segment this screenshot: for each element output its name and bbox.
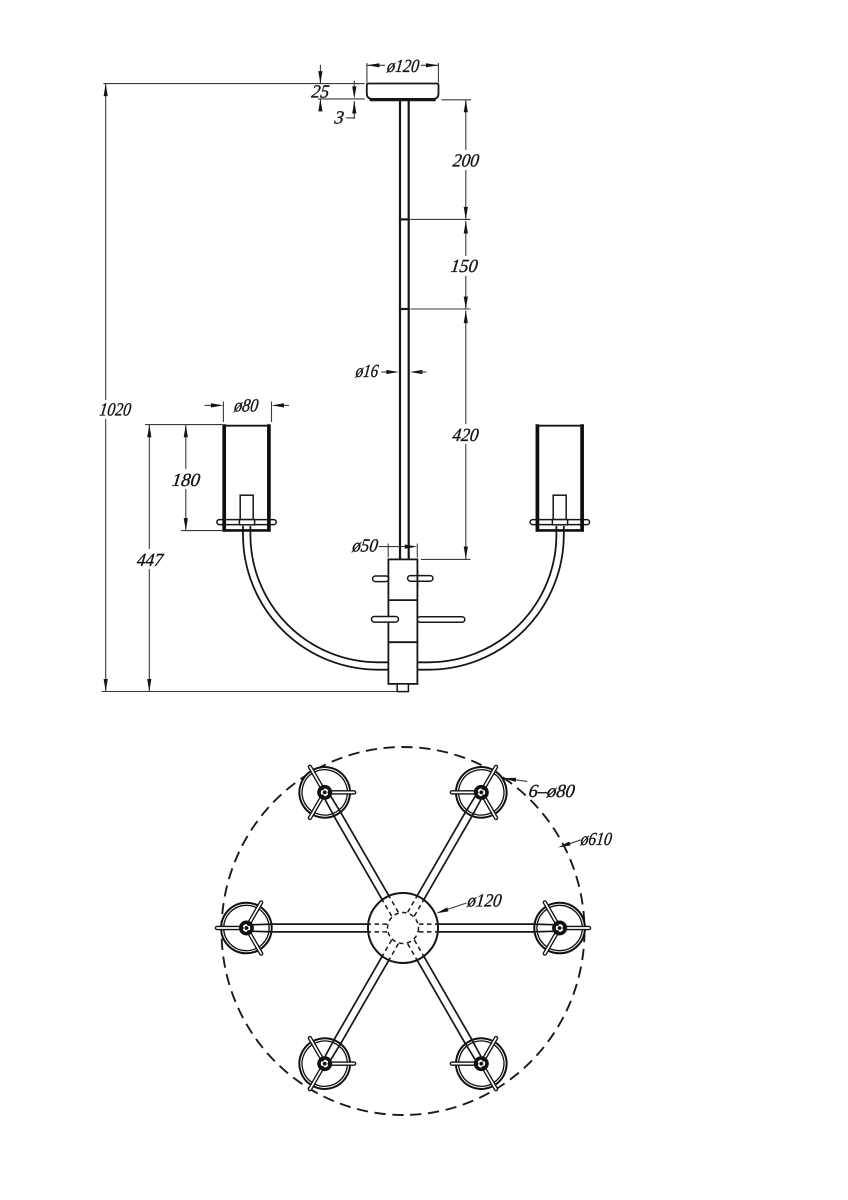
svg-text:ø80: ø80 bbox=[232, 396, 260, 417]
svg-text:ø16: ø16 bbox=[354, 361, 380, 382]
svg-text:6–ø80: 6–ø80 bbox=[528, 781, 577, 802]
svg-text:420: 420 bbox=[451, 425, 480, 446]
svg-text:ø120: ø120 bbox=[385, 56, 421, 77]
svg-text:1020: 1020 bbox=[98, 400, 133, 421]
svg-text:25: 25 bbox=[310, 82, 330, 103]
svg-text:180: 180 bbox=[171, 470, 202, 491]
svg-text:447: 447 bbox=[136, 550, 165, 571]
svg-text:ø120: ø120 bbox=[465, 890, 503, 911]
svg-text:150: 150 bbox=[449, 256, 479, 277]
svg-text:200: 200 bbox=[452, 151, 481, 172]
svg-text:ø610: ø610 bbox=[579, 829, 614, 850]
svg-text:ø50: ø50 bbox=[350, 535, 380, 556]
